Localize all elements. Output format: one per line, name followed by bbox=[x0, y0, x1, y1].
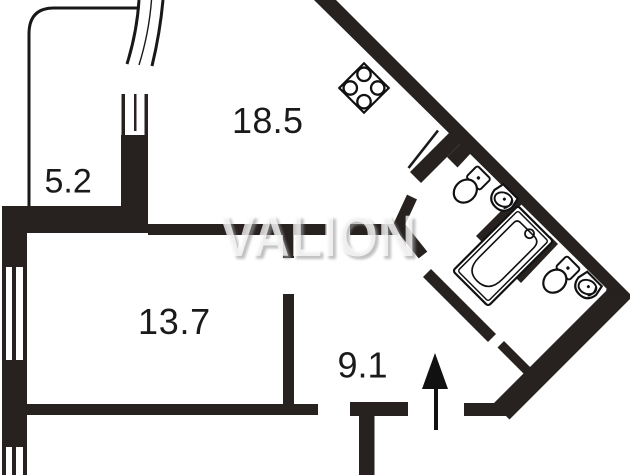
svg-text:18.5: 18.5 bbox=[232, 100, 303, 141]
svg-text:VALION: VALION bbox=[220, 204, 416, 269]
svg-text:5.2: 5.2 bbox=[45, 163, 92, 201]
svg-text:9.1: 9.1 bbox=[338, 345, 388, 386]
svg-text:13.7: 13.7 bbox=[138, 301, 211, 342]
